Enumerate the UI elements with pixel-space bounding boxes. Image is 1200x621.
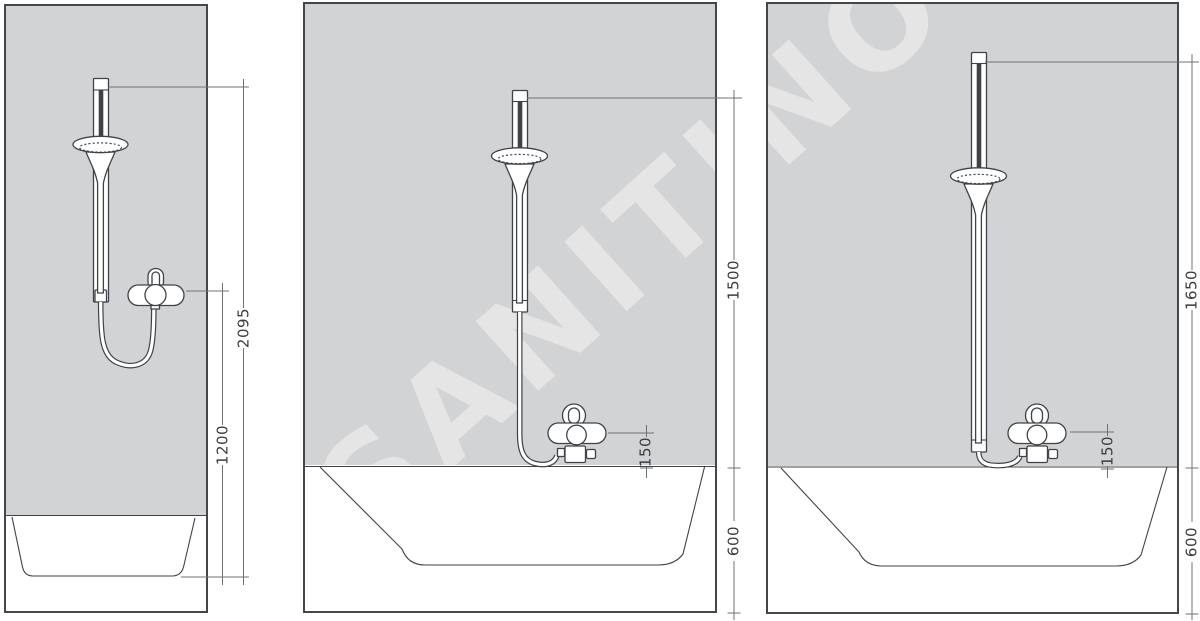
dimension-label-rail-height-p3: 1650 bbox=[1185, 270, 1200, 310]
panel-3-dimensions bbox=[985, 54, 1199, 620]
panel-1-dimensions bbox=[108, 79, 249, 585]
dimension-label-total-height-p1: 2095 bbox=[236, 308, 251, 348]
dimension-label-mixer-offset-p3: 150 bbox=[1100, 436, 1115, 466]
dimension-label-tub-height-p3: 600 bbox=[1185, 527, 1200, 557]
dimension-label-rail-height-p2: 1500 bbox=[727, 260, 742, 300]
dimension-label-mixer-height-p1: 1200 bbox=[215, 425, 230, 465]
dimension-label-mixer-offset-p2: 150 bbox=[639, 437, 654, 467]
dimension-label-tub-height-p2: 600 bbox=[727, 526, 742, 556]
panel-2-dimensions bbox=[527, 90, 742, 620]
dimension-lines bbox=[0, 0, 1200, 621]
installation-diagram: SANITINO bbox=[0, 0, 1200, 621]
